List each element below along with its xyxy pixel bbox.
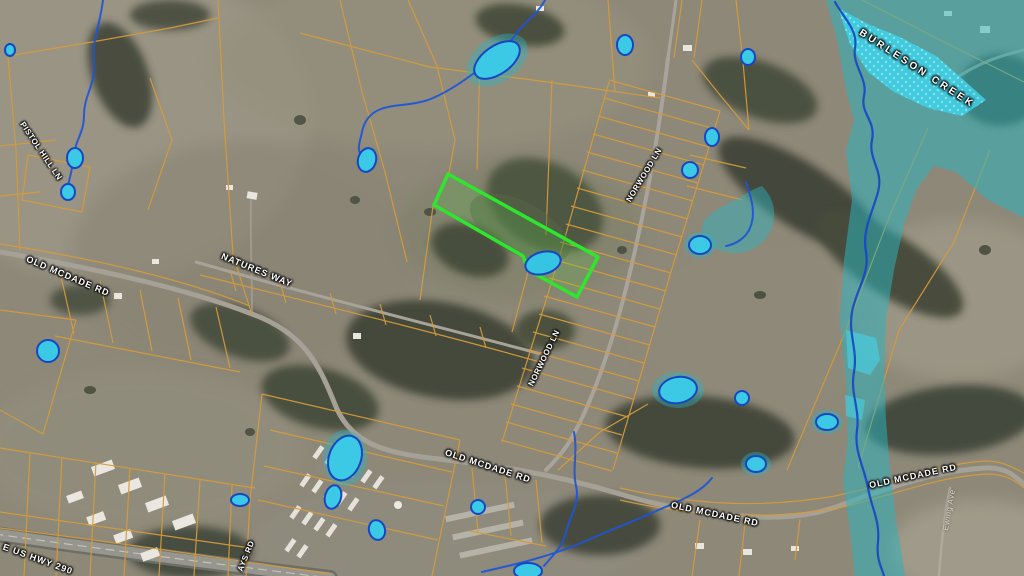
map-viewport[interactable]: PISTOL HILL LN OLD MCDADE RD NATURES WAY…: [0, 0, 1024, 576]
map-canvas: [0, 0, 1024, 576]
